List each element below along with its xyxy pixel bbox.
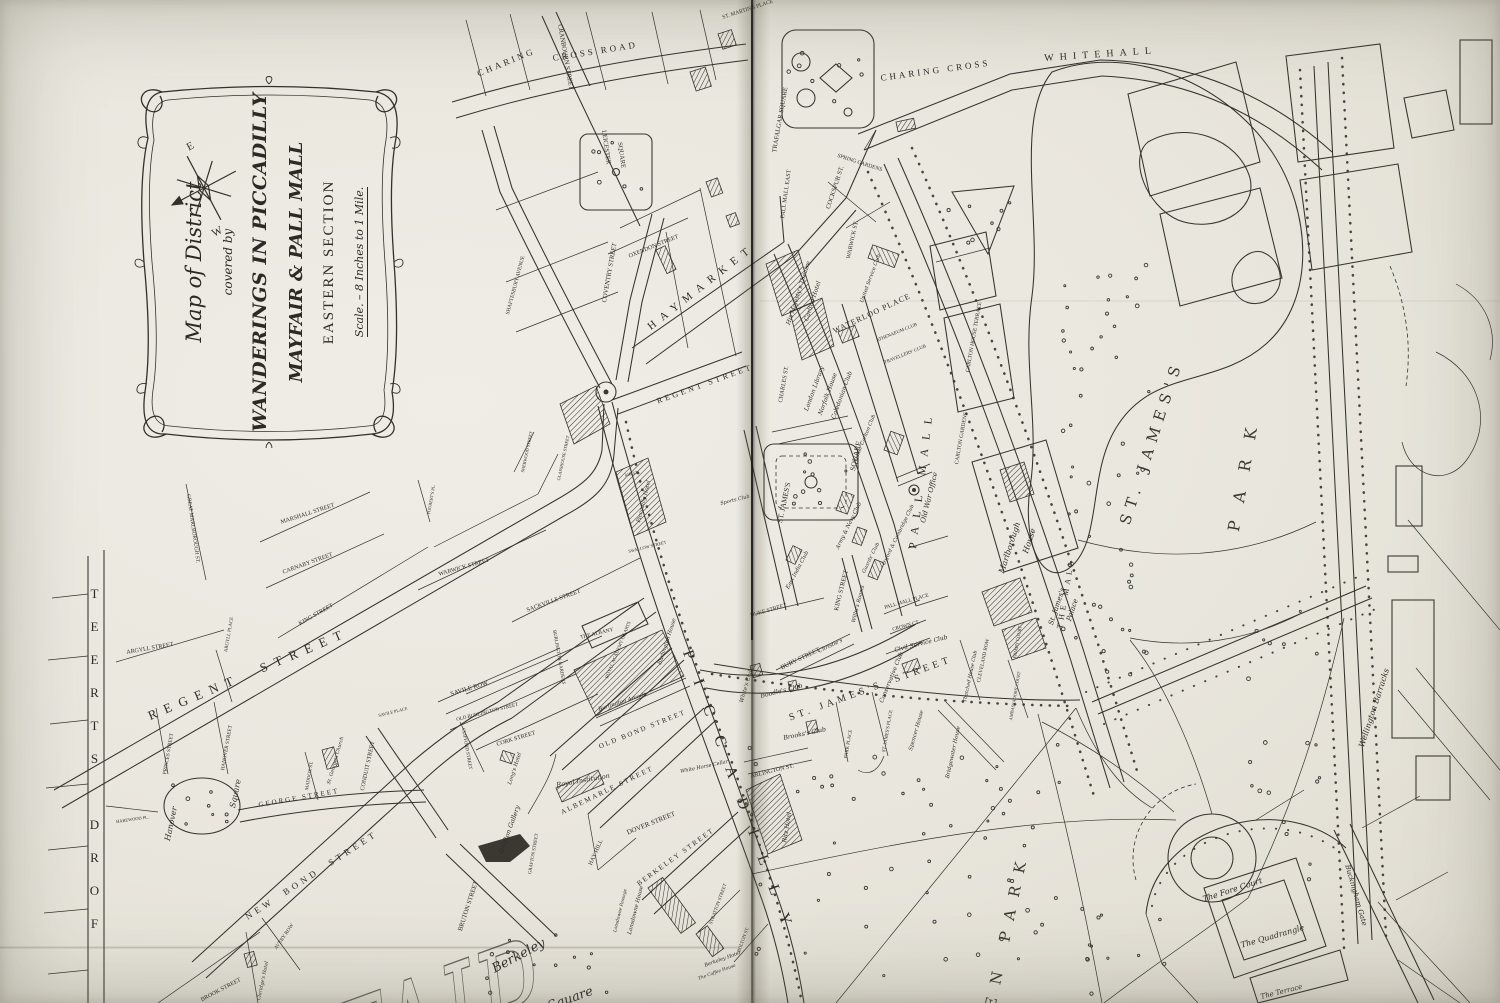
map-title-section: EASTERN SECTION [321, 180, 338, 345]
map-title-line2: covered by [221, 229, 235, 296]
map-title-line1: Map of District [182, 182, 206, 343]
map-title-line3: WANDERINGS IN PICCADILLY [249, 92, 271, 431]
map-title-line4: MAYFAIR & PALL MALL [286, 142, 307, 383]
title-cartouche: E W Map of District covered by WANDERING… [128, 76, 410, 448]
cartouche-text: Map of District covered by WANDERINGS IN… [182, 92, 368, 432]
map-page: CHARINGCROSS ROADCRANBOURN STREETLEICEST… [0, 0, 1500, 1003]
map-scale: Scale. – 8 Inches to 1 Mile. [353, 187, 368, 337]
